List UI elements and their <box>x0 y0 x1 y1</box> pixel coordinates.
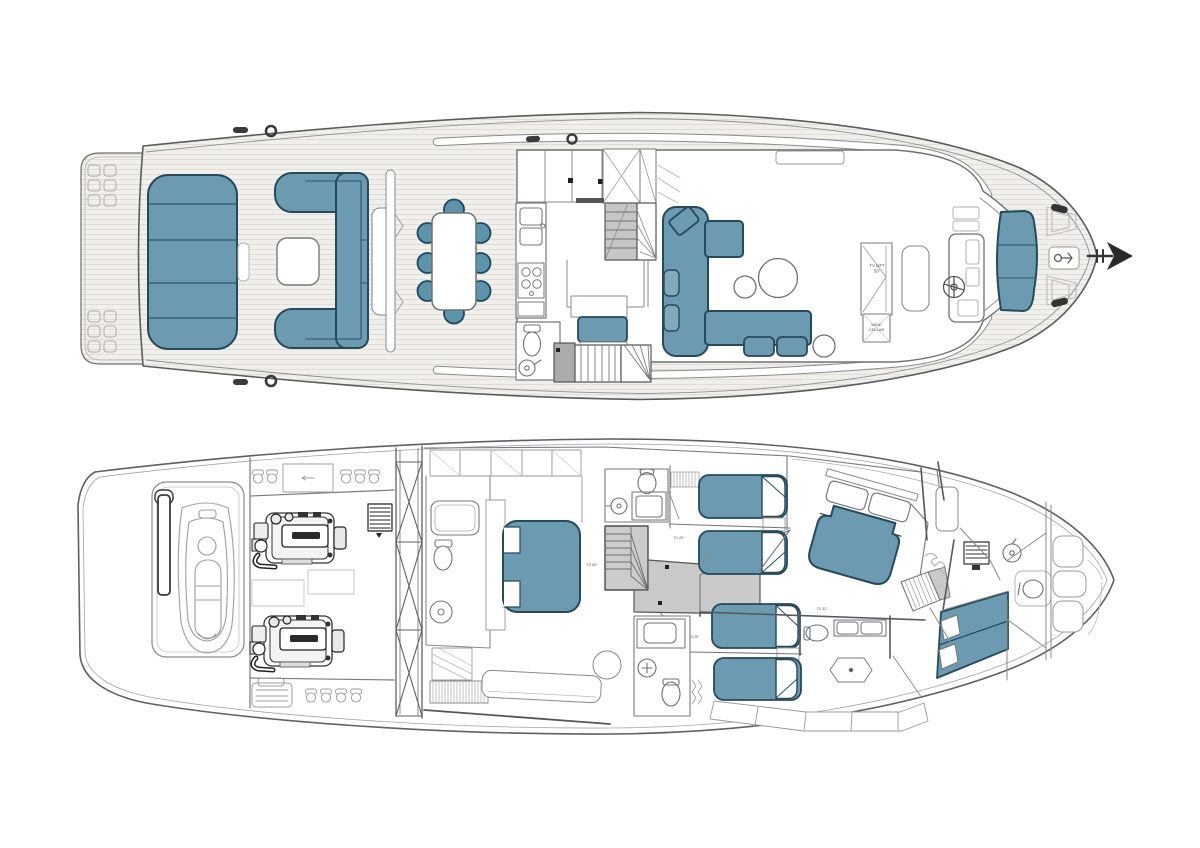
svg-text:TV 26": TV 26" <box>674 536 686 540</box>
svg-text:TV 50": TV 50" <box>586 563 598 567</box>
svg-text:50": 50" <box>874 269 881 274</box>
svg-text:TV 32": TV 32" <box>817 607 829 611</box>
svg-text:TV LIFT: TV LIFT <box>869 263 885 268</box>
svg-text:CELLAR: CELLAR <box>869 327 885 332</box>
